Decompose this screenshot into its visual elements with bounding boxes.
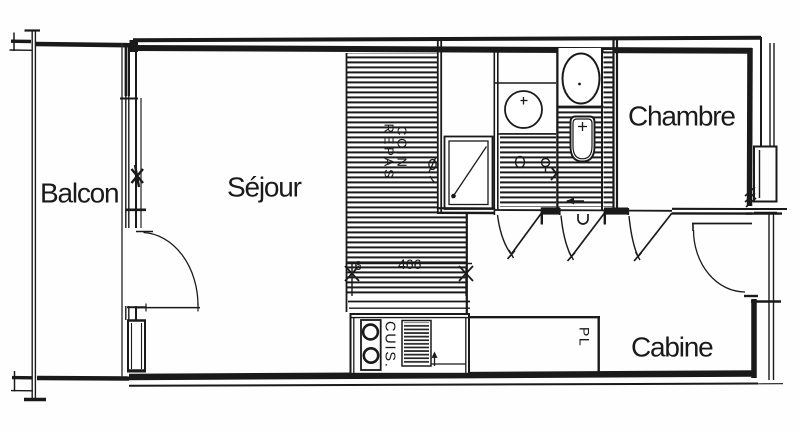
svg-text:Balcon: Balcon <box>40 178 118 209</box>
svg-text:466: 466 <box>398 256 422 272</box>
svg-text:Chambre: Chambre <box>628 101 735 132</box>
svg-text:PL: PL <box>577 327 593 347</box>
svg-text:Cabine: Cabine <box>631 332 713 363</box>
svg-text:6: 6 <box>355 258 362 273</box>
svg-text:Séjour: Séjour <box>227 172 302 203</box>
svg-text:REPAS: REPAS <box>382 124 397 181</box>
svg-text:CUIS.: CUIS. <box>382 321 398 369</box>
